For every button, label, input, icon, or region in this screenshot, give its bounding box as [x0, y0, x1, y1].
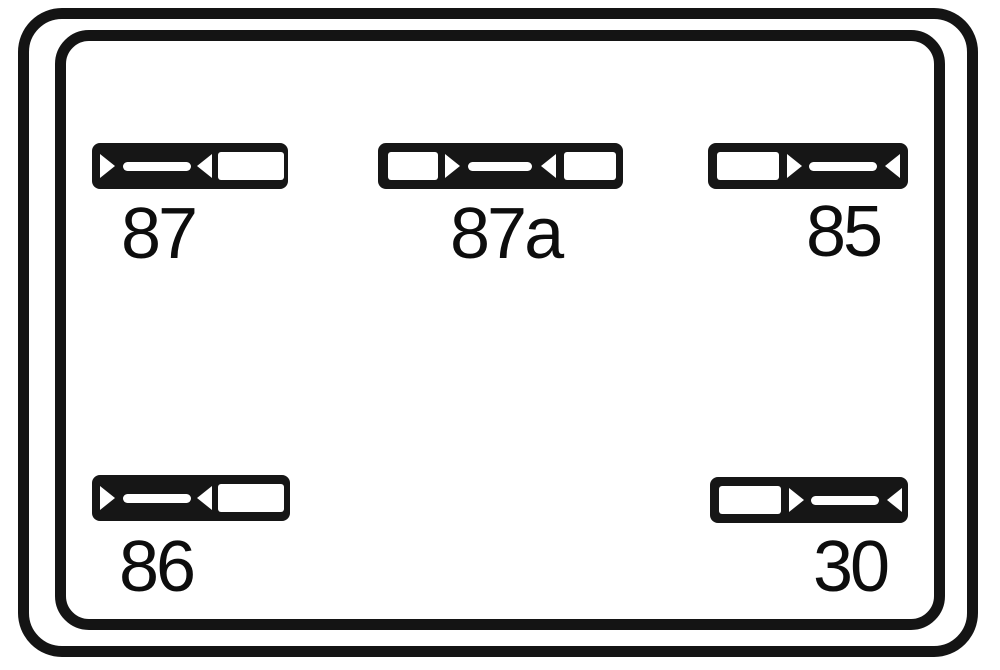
terminal-opening-icon	[719, 486, 781, 514]
pin-30-terminal-slot	[710, 477, 908, 523]
terminal-opening-icon	[218, 152, 284, 180]
pin-87a-label: 87a	[450, 198, 561, 270]
blade-bar-icon	[123, 494, 191, 503]
blade-taper-right-icon	[787, 154, 802, 178]
blade-taper-left-icon	[197, 154, 212, 178]
terminal-opening-icon	[218, 484, 284, 512]
terminal-opening-icon	[717, 152, 779, 180]
blade-bar-icon	[468, 162, 532, 171]
blade-bar-icon	[809, 162, 877, 171]
pin-87a-terminal-slot	[378, 143, 623, 189]
pin-30-label: 30	[813, 531, 887, 603]
blade-taper-right-icon	[100, 486, 115, 510]
pin-87-terminal-slot	[92, 143, 288, 189]
pin-86-terminal-slot	[92, 475, 290, 521]
relay-bottom-view-diagram: 87 87a 85 86 30	[0, 0, 1000, 670]
blade-taper-right-icon	[789, 488, 804, 512]
blade-taper-right-icon	[445, 154, 460, 178]
pin-87-label: 87	[121, 198, 195, 270]
blade-taper-left-icon	[887, 488, 902, 512]
terminal-opening-icon	[388, 152, 438, 180]
blade-bar-icon	[811, 496, 879, 505]
pin-85-terminal-slot	[708, 143, 908, 189]
pin-85-label: 85	[806, 196, 880, 268]
blade-taper-left-icon	[541, 154, 556, 178]
terminal-opening-icon	[564, 152, 616, 180]
blade-taper-right-icon	[100, 154, 115, 178]
blade-bar-icon	[123, 162, 191, 171]
blade-taper-left-icon	[885, 154, 900, 178]
blade-taper-left-icon	[197, 486, 212, 510]
pin-86-label: 86	[119, 531, 193, 603]
